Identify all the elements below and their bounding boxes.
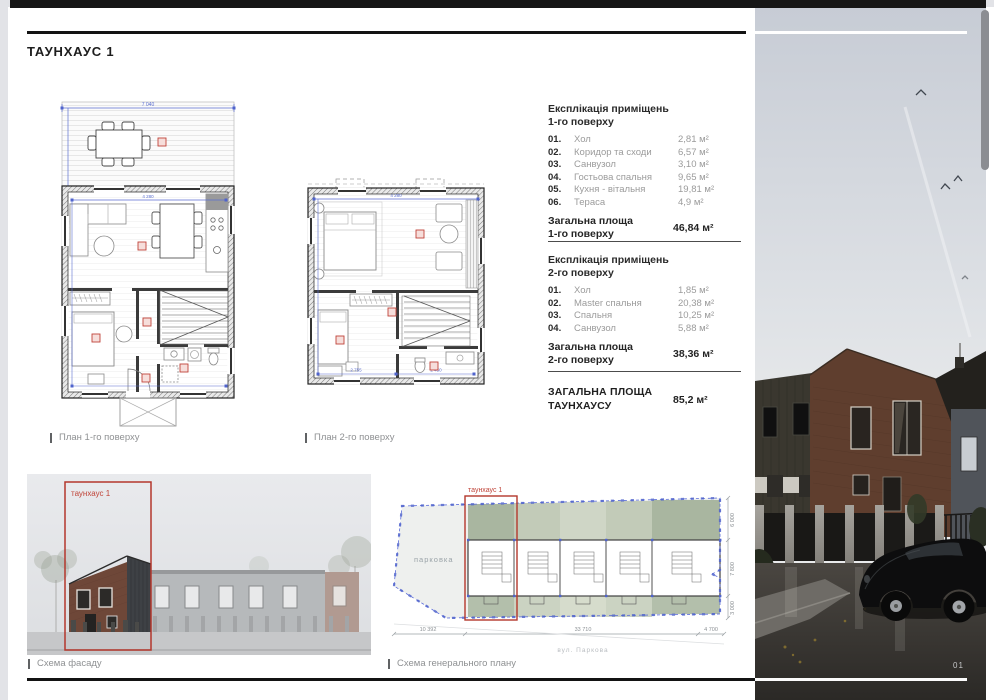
dim-label: 7 800 xyxy=(730,562,736,576)
street-label: вул. Паркова xyxy=(557,647,608,654)
dim-label: 10 392 xyxy=(420,627,437,633)
room-number: 04. xyxy=(548,172,574,185)
room-name: Гостьова спальня xyxy=(574,172,678,185)
dim-label: 4 280 xyxy=(142,194,154,199)
top-rule-over-photo xyxy=(755,31,967,34)
room-number: 01. xyxy=(548,285,574,298)
building-block xyxy=(468,540,720,604)
table-row: 04.Гостьова спальня9,65 м² xyxy=(548,172,742,185)
dim-label: 33 710 xyxy=(575,627,592,633)
siteplan-caption: Схема генерального плану xyxy=(388,659,516,669)
roof-overhang xyxy=(308,179,484,188)
table-row: 04.Санвузол5,88 м² xyxy=(548,323,742,336)
floor2-total-value: 38,36 м² xyxy=(673,348,713,360)
bottom-rule-over-photo xyxy=(755,678,967,681)
page-number: 01 xyxy=(953,661,964,670)
room-number: 04. xyxy=(548,323,574,336)
top-black-bar xyxy=(10,0,986,8)
room-area: 1,85 м² xyxy=(678,285,742,298)
table-row: 01.Хол1,85 м² xyxy=(548,285,742,298)
room-number: 02. xyxy=(548,298,574,311)
floor-plan-1: 7 040 xyxy=(48,96,248,432)
dim-label: 4 700 xyxy=(704,627,718,633)
exterior-render-photo xyxy=(755,7,986,700)
facade-scheme: таунхаус 1 xyxy=(27,474,371,655)
room-name: Коридор та сходи xyxy=(574,147,678,160)
dim-label: 2 755 xyxy=(350,368,362,373)
room-area: 19,81 м² xyxy=(678,184,742,197)
explication-floor2: Експлікація приміщень 2-го поверху 01.Хо… xyxy=(548,254,742,367)
room-number: 05. xyxy=(548,184,574,197)
table-row: 05.Кухня - вітальня19,81 м² xyxy=(548,184,742,197)
room-area: 9,65 м² xyxy=(678,172,742,185)
explication-title-line: Експлікація приміщень xyxy=(548,103,742,116)
grand-total-value: 85,2 м² xyxy=(673,394,708,406)
floor1-total: Загальна площа 1-го поверху 46,84 м² xyxy=(548,215,742,241)
table-row: 02.Коридор та сходи6,57 м² xyxy=(548,147,742,160)
top-rule xyxy=(27,31,746,34)
plan1-caption: План 1-го поверху xyxy=(50,433,140,443)
section-divider xyxy=(548,241,741,242)
total-label-line: 1-го поверху xyxy=(548,228,673,241)
facade-caption: Схема фасаду xyxy=(28,659,102,669)
room-area: 3,10 м² xyxy=(678,159,742,172)
explication-title-line: 1-го поверху xyxy=(548,116,742,129)
room-tag xyxy=(158,138,166,146)
table-row: 01.Хол2,81 м² xyxy=(548,134,742,147)
total-label-line: 2-го поверху xyxy=(548,354,673,367)
room-number: 06. xyxy=(548,197,574,210)
section-divider xyxy=(548,371,741,372)
scrollbar-thumb[interactable] xyxy=(981,10,989,170)
room-name: Хол xyxy=(574,285,678,298)
bush xyxy=(907,494,927,524)
bottom-rule xyxy=(27,678,755,681)
table-row: 02.Master спальня20,38 м² xyxy=(548,298,742,311)
room-name: Master спальня xyxy=(574,298,678,311)
table-row: 03.Спальня10,25 м² xyxy=(548,310,742,323)
room-area: 20,38 м² xyxy=(678,298,742,311)
dim-label: 7 040 xyxy=(142,102,155,108)
room-area: 5,88 м² xyxy=(678,323,742,336)
room-name: Спальня xyxy=(574,310,678,323)
room-name: Санвузол xyxy=(574,323,678,336)
table-row: 06.Тераса4,9 м² xyxy=(548,197,742,210)
general-plan-scheme: таунхаус 1 парковка 10 392 33 710 4 700 … xyxy=(388,466,744,656)
room-area: 4,9 м² xyxy=(678,197,742,210)
explication-floor2-title: Експлікація приміщень 2-го поверху xyxy=(548,254,742,279)
exterior-render-svg xyxy=(755,7,986,700)
room-number: 03. xyxy=(548,159,574,172)
explication-floor1: Експлікація приміщень 1-го поверху 01.Хо… xyxy=(548,103,742,241)
room-number: 03. xyxy=(548,310,574,323)
terrace: 7 040 xyxy=(61,102,236,186)
room-number: 02. xyxy=(548,147,574,160)
street-ground xyxy=(27,632,371,655)
room-area: 10,25 м² xyxy=(678,310,742,323)
parking-label: парковка xyxy=(414,555,454,564)
room-area: 2,81 м² xyxy=(678,134,742,147)
kitchen xyxy=(206,194,228,272)
room-area: 6,57 м² xyxy=(678,147,742,160)
dim-label: 3 000 xyxy=(730,601,736,615)
floor2-total-label: Загальна площа 2-го поверху xyxy=(548,341,673,367)
room-name: Тераса xyxy=(574,197,678,210)
floor1-total-value: 46,84 м² xyxy=(673,222,713,234)
grand-total-line: ЗАГАЛЬНА ПЛОЩА xyxy=(548,386,673,400)
master-bedroom xyxy=(314,202,382,279)
room-number: 01. xyxy=(548,134,574,147)
highlight-label: таунхаус 1 xyxy=(468,487,502,494)
room-name: Кухня - вітальня xyxy=(574,184,678,197)
total-label-line: Загальна площа xyxy=(548,215,673,228)
floor-plan-2: 4 280 2 755 2 450 xyxy=(298,178,494,406)
plan2-caption: План 2-го поверху xyxy=(305,433,395,443)
total-label-line: Загальна площа xyxy=(548,341,673,354)
floor1-total-label: Загальна площа 1-го поверху xyxy=(548,215,673,241)
dim-label: 6 000 xyxy=(730,513,736,527)
faded-townhouse-row xyxy=(145,570,359,634)
explication-title-line: Експлікація приміщень xyxy=(548,254,742,267)
highlight-label: таунхаус 1 xyxy=(71,489,111,498)
dim-label: 4 280 xyxy=(390,193,402,198)
grand-total-line: ТАУНХАУСУ xyxy=(548,400,673,414)
explication-title-line: 2-го поверху xyxy=(548,267,742,280)
room-name: Хол xyxy=(574,134,678,147)
table-row: 03.Санвузол3,10 м² xyxy=(548,159,742,172)
grand-total-label: ЗАГАЛЬНА ПЛОЩА ТАУНХАУСУ xyxy=(548,386,673,413)
grand-total: ЗАГАЛЬНА ПЛОЩА ТАУНХАУСУ 85,2 м² xyxy=(548,386,742,413)
explication-floor1-title: Експлікація приміщень 1-го поверху xyxy=(548,103,742,128)
floor2-total: Загальна площа 2-го поверху 38,36 м² xyxy=(548,341,742,367)
room-name: Санвузол xyxy=(574,159,678,172)
page-title: ТАУНХАУС 1 xyxy=(27,44,114,59)
